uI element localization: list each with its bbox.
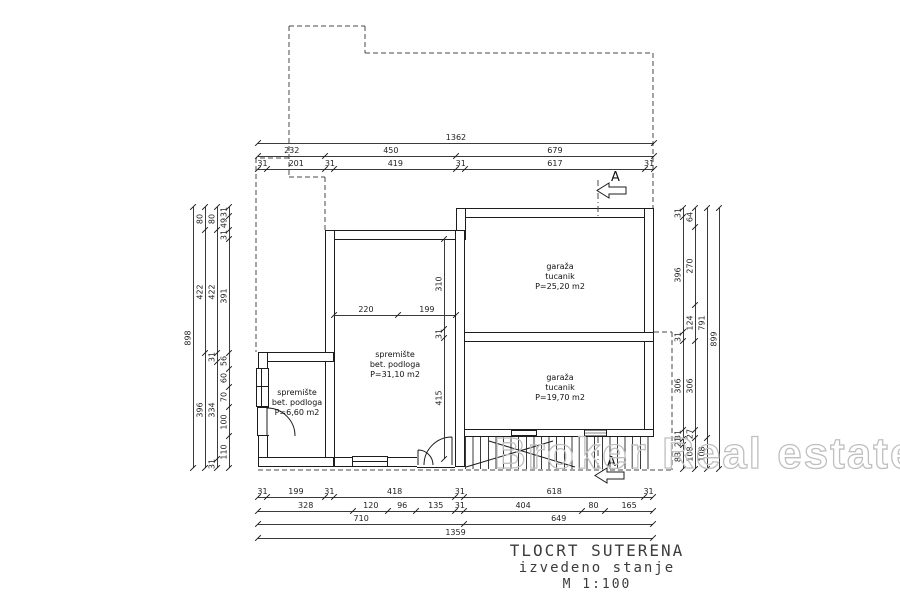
door-opening: [417, 456, 455, 468]
room-area: P=19,70 m2: [535, 393, 585, 403]
drawing-subtitle: izvedeno stanje: [510, 560, 685, 577]
dim-label: 391: [220, 288, 229, 303]
room-name: garaža: [535, 262, 585, 272]
wall-segment: [258, 352, 334, 362]
dim-label: 396: [196, 403, 205, 418]
dim-label: 419: [388, 159, 403, 168]
dim-label: 710: [354, 514, 369, 523]
dim-label: 310: [435, 276, 444, 291]
dim-label: 31: [643, 487, 653, 496]
dim-label: 120: [363, 501, 378, 510]
dim-label: 31: [324, 487, 334, 496]
drawing-scale: M 1:100: [510, 577, 685, 593]
dim-line: [217, 207, 218, 468]
dim-label: 49: [220, 218, 229, 228]
dim-label: 31: [208, 458, 217, 468]
wall-segment: [644, 208, 654, 437]
dim-label: 306: [674, 378, 683, 393]
dim-label: 70: [220, 392, 229, 402]
room-area: P=6,60 m2: [272, 408, 322, 418]
dim-label: 1362: [446, 133, 466, 142]
dim-line: [258, 538, 653, 539]
dim-label: 422: [208, 284, 217, 299]
dim-line: [193, 207, 194, 468]
dim-label: 1359: [445, 528, 465, 537]
room-label-storage-main: spremište bet. podloga P=31,10 m2: [370, 350, 420, 380]
dim-label: 270: [686, 258, 695, 273]
window-symbol: [352, 456, 388, 467]
dim-label: 110: [220, 444, 229, 459]
dim-line: [444, 239, 445, 459]
drawing-title: TLOCRT SUTERENA: [510, 541, 685, 560]
dim-label: 31: [455, 487, 465, 496]
dim-label: 31: [325, 159, 335, 168]
wall-segment: [456, 332, 654, 342]
dim-line: [258, 143, 654, 144]
dim-label: 124: [686, 315, 695, 330]
room-finish: tucanik: [535, 272, 585, 282]
dim-label: 80: [196, 214, 205, 224]
window-symbol: [256, 386, 269, 407]
dim-label: 199: [419, 305, 434, 314]
dim-label: 165: [621, 501, 636, 510]
dim-label: 31: [220, 206, 229, 216]
room-name: spremište: [370, 350, 420, 360]
dim-label: 31: [674, 207, 683, 217]
dim-label: 649: [551, 514, 566, 523]
dim-label: 100: [220, 414, 229, 429]
dim-label: 56: [220, 356, 229, 366]
dim-label: 418: [387, 487, 402, 496]
dim-label: 899: [710, 331, 719, 346]
room-area: P=31,10 m2: [370, 370, 420, 380]
dim-label: 679: [547, 146, 562, 155]
dim-label: 31: [257, 487, 267, 496]
section-arrow-icon: [597, 183, 626, 198]
dim-line: [205, 207, 206, 468]
dim-label: 80: [208, 214, 217, 224]
room-finish: bet. podloga: [370, 360, 420, 370]
dim-label: 135: [428, 501, 443, 510]
room-area: P=25,20 m2: [535, 282, 585, 292]
wall-segment: [258, 457, 334, 467]
watermark-text: Broker Real estate: [494, 429, 900, 479]
dim-label: 328: [298, 501, 313, 510]
plan-linework: [0, 0, 900, 600]
room-finish: tucanik: [535, 383, 585, 393]
dim-label: 617: [547, 159, 562, 168]
dim-label: 232: [284, 146, 299, 155]
dim-label: 31: [455, 501, 465, 510]
room-finish: bet. podloga: [272, 398, 322, 408]
dim-label: 334: [208, 403, 217, 418]
dim-line: [258, 524, 653, 525]
dim-tick: [226, 465, 232, 471]
wall-segment: [455, 230, 465, 467]
dim-label: 31: [456, 159, 466, 168]
dim-label: 64: [686, 212, 695, 222]
dim-label: 404: [515, 501, 530, 510]
dim-label: 306: [686, 378, 695, 393]
dim-tick: [190, 465, 196, 471]
dim-tick: [650, 521, 656, 527]
dim-label: 220: [358, 305, 373, 314]
dim-label: 80: [588, 501, 598, 510]
dim-label: 201: [289, 159, 304, 168]
dim-label: 31: [257, 159, 267, 168]
dim-label: 898: [184, 330, 193, 345]
title-block: TLOCRT SUTERENA izvedeno stanje M 1:100: [510, 541, 685, 593]
room-label-garage-upper: garaža tucanik P=25,20 m2: [535, 262, 585, 292]
dim-label: 450: [383, 146, 398, 155]
dim-label: 199: [288, 487, 303, 496]
dim-label: 415: [435, 391, 444, 406]
wall-segment: [456, 208, 654, 218]
window-symbol: [256, 368, 269, 387]
room-label-garage-lower: garaža tucanik P=19,70 m2: [535, 373, 585, 403]
dim-label: 60: [220, 373, 229, 383]
dim-label: 618: [547, 487, 562, 496]
room-name: garaža: [535, 373, 585, 383]
dim-label: 422: [196, 284, 205, 299]
dim-tick: [651, 140, 657, 146]
dim-label: 31: [644, 159, 654, 168]
dim-line: [229, 207, 230, 468]
dim-label: 396: [674, 267, 683, 282]
room-label-storage-small: spremište bet. podloga P=6,60 m2: [272, 388, 322, 418]
door-opening: [257, 407, 269, 436]
room-name: spremište: [272, 388, 322, 398]
dim-tick: [650, 508, 656, 514]
section-marker-a-top: A: [611, 170, 620, 185]
dim-label: 31: [208, 352, 217, 362]
wall-segment: [325, 230, 335, 467]
dim-label: 96: [397, 501, 407, 510]
dim-label: 791: [698, 315, 707, 330]
floor-plan-sheet: garaža tucanik P=25,20 m2 garaža tucanik…: [0, 0, 900, 600]
